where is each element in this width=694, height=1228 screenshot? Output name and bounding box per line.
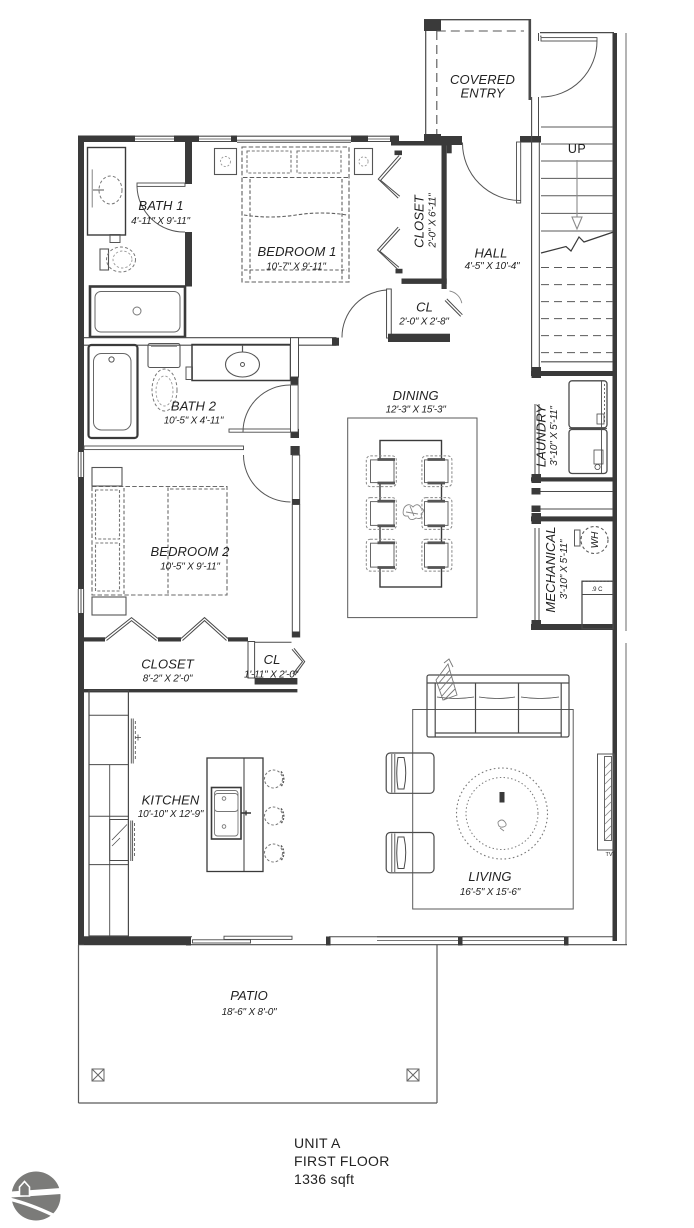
svg-text:4'-5" X 10'-4": 4'-5" X 10'-4": [465, 261, 520, 272]
svg-text:TV: TV: [606, 852, 613, 858]
svg-text:ENTRY: ENTRY: [460, 86, 505, 101]
svg-text:10'-5" X 4'-11": 10'-5" X 4'-11": [164, 416, 224, 427]
svg-text:WH: WH: [590, 531, 601, 548]
svg-text:2'-0" X 6'-11": 2'-0" X 6'-11": [428, 193, 439, 249]
svg-text:CLOSET: CLOSET: [141, 657, 195, 672]
svg-text:4'-11" X 9'-11": 4'-11" X 9'-11": [131, 216, 190, 227]
svg-text:UNIT A: UNIT A: [294, 1135, 341, 1151]
svg-text:1336 sqft: 1336 sqft: [294, 1171, 354, 1187]
svg-text:2'-0" X 2'-8": 2'-0" X 2'-8": [398, 317, 449, 328]
svg-text:LIVING: LIVING: [468, 869, 511, 884]
svg-text:12'-3" X 15'-3": 12'-3" X 15'-3": [386, 405, 447, 416]
svg-text:10'-10" X 12'-9": 10'-10" X 12'-9": [138, 809, 204, 820]
svg-text:.9 C: .9 C: [591, 587, 603, 593]
svg-text:CL: CL: [264, 652, 281, 667]
svg-text:8'-2" X 2'-0": 8'-2" X 2'-0": [143, 674, 193, 685]
svg-text:18'-6" X 8'-0": 18'-6" X 8'-0": [222, 1007, 277, 1018]
svg-text:1'-11" X 2'-0": 1'-11" X 2'-0": [244, 670, 299, 681]
svg-text:CL: CL: [416, 300, 433, 315]
svg-text:BEDROOM 2: BEDROOM 2: [151, 544, 231, 559]
svg-text:LAUNDRY: LAUNDRY: [534, 404, 549, 468]
svg-text:BEDROOM 1: BEDROOM 1: [258, 244, 337, 259]
svg-text:KITCHEN: KITCHEN: [142, 793, 200, 808]
svg-text:PATIO: PATIO: [230, 988, 268, 1003]
svg-text:BATH 2: BATH 2: [171, 399, 217, 414]
svg-text:CLOSET: CLOSET: [412, 194, 427, 248]
svg-text:DINING: DINING: [393, 388, 439, 403]
svg-text:10'-7" X 9'-11": 10'-7" X 9'-11": [266, 262, 326, 273]
svg-text:UP: UP: [568, 142, 586, 156]
svg-text:BATH 1: BATH 1: [138, 198, 183, 213]
svg-text:FIRST FLOOR: FIRST FLOOR: [294, 1153, 390, 1169]
svg-text:3'-10" X 5'-11": 3'-10" X 5'-11": [549, 406, 560, 466]
svg-text:16'-5" X 15'-6": 16'-5" X 15'-6": [460, 887, 521, 898]
svg-text:10'-5" X 9'-11": 10'-5" X 9'-11": [160, 562, 220, 573]
svg-text:MECHANICAL: MECHANICAL: [543, 526, 558, 612]
svg-text:HALL: HALL: [475, 246, 508, 261]
svg-text:3'-10" X 5'-11": 3'-10" X 5'-11": [559, 539, 570, 599]
